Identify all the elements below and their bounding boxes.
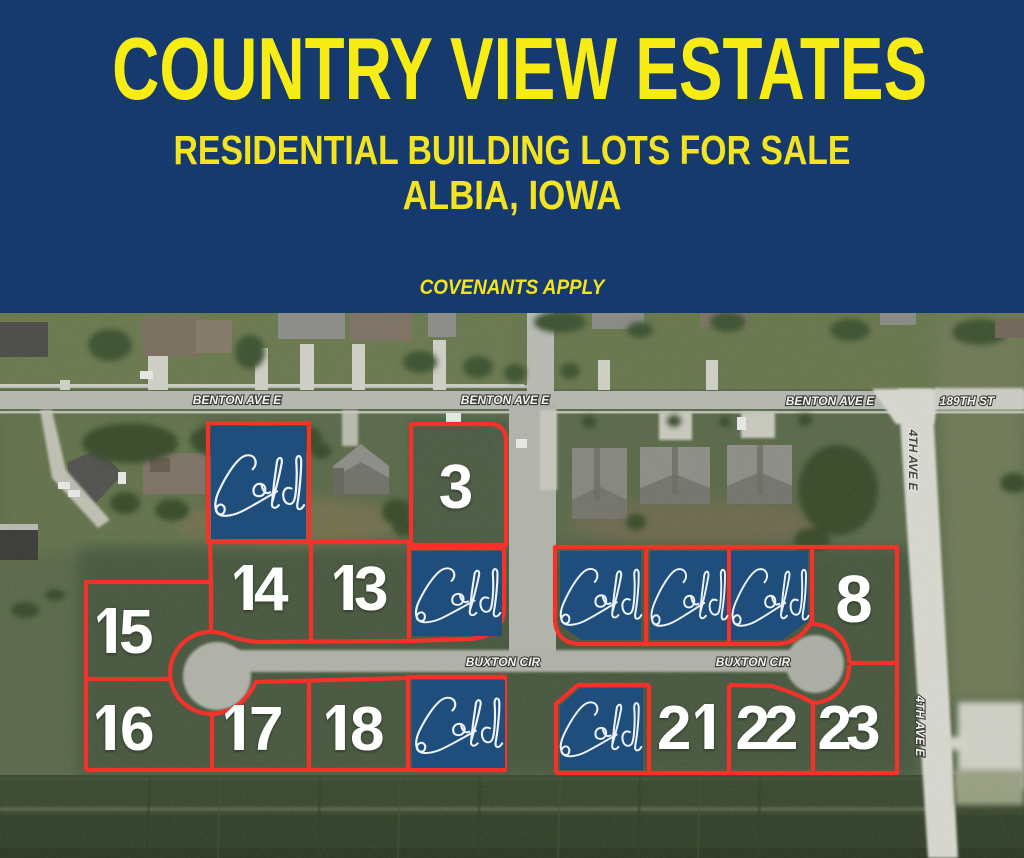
svg-text:8: 8 bbox=[835, 562, 872, 637]
svg-text:23: 23 bbox=[818, 694, 881, 763]
svg-text:8: 8 bbox=[350, 695, 384, 764]
svg-text:6: 6 bbox=[120, 695, 154, 764]
svg-text:BENTON AVE E: BENTON AVE E bbox=[461, 393, 550, 407]
svg-text:BENTON AVE E: BENTON AVE E bbox=[193, 393, 282, 407]
svg-text:BENTON AVE E: BENTON AVE E bbox=[786, 394, 875, 408]
svg-text:3: 3 bbox=[354, 555, 388, 624]
svg-text:4TH AVE E: 4TH AVE E bbox=[913, 695, 927, 758]
svg-text:BUXTON CIR: BUXTON CIR bbox=[716, 655, 791, 669]
svg-text:5: 5 bbox=[119, 598, 153, 667]
svg-text:4: 4 bbox=[254, 555, 289, 624]
svg-text:2: 2 bbox=[657, 694, 691, 763]
svg-text:4TH AVE E: 4TH AVE E bbox=[906, 429, 920, 492]
svg-text:7: 7 bbox=[249, 695, 283, 764]
svg-text:22: 22 bbox=[736, 694, 799, 763]
svg-text:3: 3 bbox=[439, 453, 473, 522]
svg-text:189TH ST: 189TH ST bbox=[940, 394, 996, 408]
svg-text:BUXTON CIR: BUXTON CIR bbox=[466, 655, 541, 669]
